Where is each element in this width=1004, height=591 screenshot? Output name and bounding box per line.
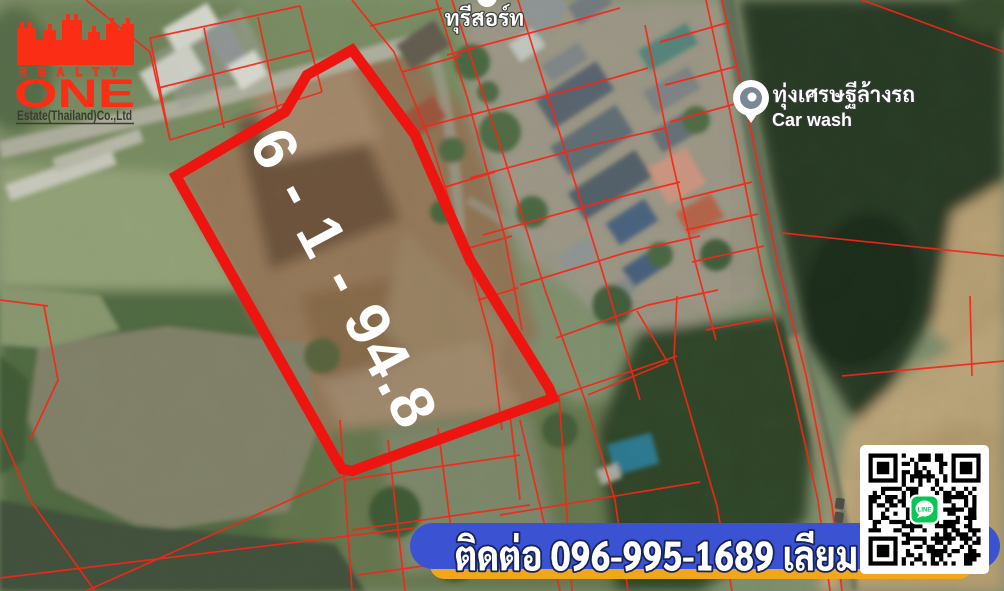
svg-text:Car wash: Car wash (772, 110, 852, 130)
svg-text:Estate(Thailand)Co.,Ltd: Estate(Thailand)Co.,Ltd (17, 108, 132, 123)
svg-text:LINE: LINE (918, 508, 932, 514)
